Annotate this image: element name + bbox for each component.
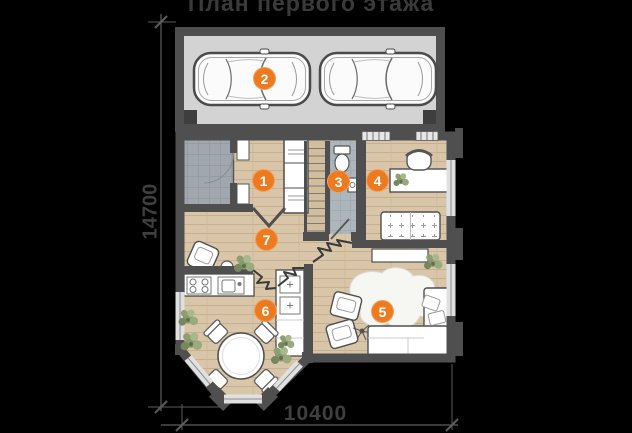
room-badge-5: 5 <box>371 300 394 323</box>
tv-console <box>372 249 428 262</box>
room-badge-4: 4 <box>366 169 389 192</box>
office-chair <box>406 151 432 171</box>
room-badge-1: 1 <box>252 169 275 192</box>
kitchen-counter <box>184 274 254 296</box>
floor-plan-canvas: План первого этажа 14700 10400 1 2 3 4 5… <box>0 0 632 433</box>
floor-plan-drawing <box>0 0 632 433</box>
hall-cabinet <box>237 140 249 160</box>
hall-cabinet <box>237 184 249 204</box>
office-sofa <box>381 212 440 240</box>
room-badge-2: 2 <box>253 67 276 90</box>
garage <box>175 27 445 132</box>
room-badge-3: 3 <box>327 170 350 193</box>
garage-pillar-right <box>423 110 436 124</box>
car-icon <box>320 49 436 109</box>
dimension-left-label: 14700 <box>140 177 163 247</box>
car-icon <box>194 49 310 109</box>
kitchen-sink-icon <box>218 277 244 294</box>
dimension-bottom-label: 10400 <box>268 402 363 426</box>
room-badge-6: 6 <box>254 299 277 322</box>
room-badge-7: 7 <box>255 228 278 251</box>
toilet-icon <box>334 146 350 172</box>
garage-pillar-left <box>184 110 197 124</box>
plan-title: План первого этажа <box>188 0 434 17</box>
